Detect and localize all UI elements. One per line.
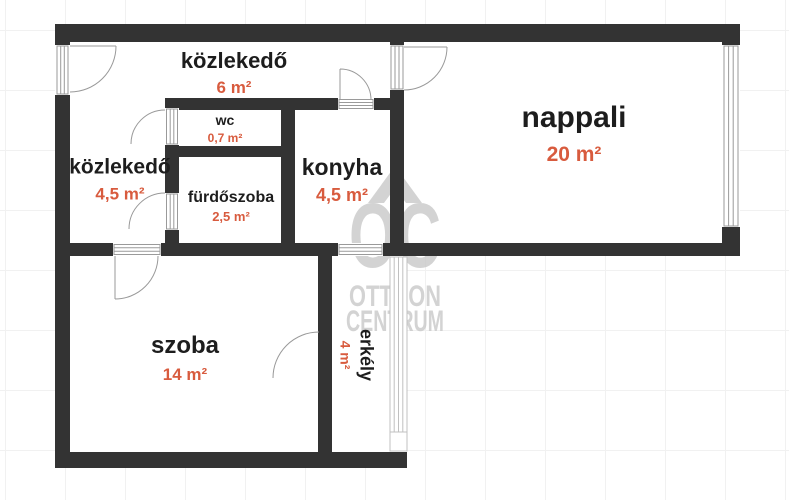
wall-wc-bathroom: [179, 146, 283, 157]
room-label-bathroom: fürdőszoba 2,5 m²: [188, 189, 274, 225]
room-name: nappali: [521, 101, 626, 134]
room-area: 20 m²: [521, 143, 626, 167]
room-area: 6 m²: [181, 78, 287, 98]
room-area: 4,5 m²: [302, 185, 383, 206]
room-name: szoba: [151, 332, 219, 359]
wall-room-balcony: [318, 256, 332, 452]
room-area: 0,7 m²: [208, 132, 243, 146]
entrance-door-panel: [57, 46, 68, 94]
room-label-balcony: erkély 4 m²: [337, 329, 376, 381]
room-name: wc: [216, 112, 235, 128]
room-name: közlekedő: [69, 156, 171, 179]
room-label-hall-top: közlekedő 6 m²: [181, 48, 287, 98]
room-area: 4 m²: [337, 329, 353, 381]
floor-plan: OC OTTHON CENTRUM: [0, 0, 789, 500]
wall-bottom: [55, 452, 407, 468]
room-label-room: szoba 14 m²: [151, 332, 219, 384]
wc-door-panel: [167, 109, 178, 144]
room-area: 14 m²: [151, 365, 219, 385]
room-area: 4,5 m²: [69, 185, 171, 205]
wall-bathroom-kitchen: [281, 98, 295, 256]
room-name: erkély: [357, 329, 377, 381]
room-name: közlekedő: [181, 48, 287, 73]
room-name: konyha: [302, 154, 383, 180]
room-label-wc: wc 0,7 m²: [208, 112, 243, 146]
kitchen-door-panel: [339, 100, 373, 109]
room-area: 2,5 m²: [188, 210, 274, 225]
room-door-panel: [114, 245, 160, 255]
living-room-door-panel: [391, 46, 403, 89]
living-room-window: [724, 46, 738, 226]
balcony-railing: [390, 257, 407, 451]
floor-plan-drawing: OC OTTHON CENTRUM: [0, 0, 789, 500]
room-label-kitchen: konyha 4,5 m²: [302, 154, 383, 206]
room-label-hall-left: közlekedő 4,5 m²: [69, 156, 171, 205]
room-name: fürdőszoba: [188, 189, 274, 206]
room-label-living-room: nappali 20 m²: [521, 101, 626, 167]
kitchen-balcony-window: [339, 245, 382, 255]
